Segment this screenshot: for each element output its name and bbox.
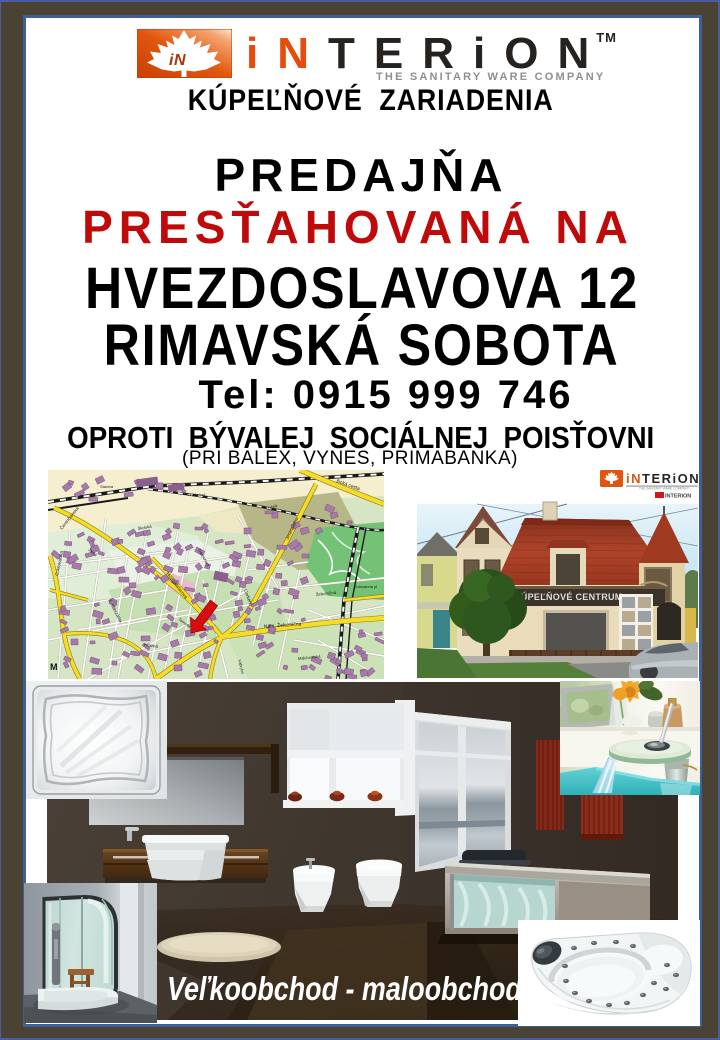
svg-text:iNTERiON: iNTERiON	[626, 471, 698, 486]
svg-text:Stavivá: Stavivá	[100, 484, 114, 489]
svg-text:INTERION: INTERION	[665, 494, 691, 500]
svg-text:THE SANITARY WARE COMPANY: THE SANITARY WARE COMPANY	[639, 487, 690, 491]
svg-text:KÚPEĽŇOVÉ CENTRUM: KÚPEĽŇOVÉ CENTRUM	[514, 591, 623, 602]
svg-text:Transanna pl: Transanna pl	[354, 584, 377, 589]
svg-text:iN: iN	[169, 52, 186, 69]
svg-text:M: M	[50, 662, 58, 672]
svg-text:M-Market: M-Market	[188, 492, 206, 497]
